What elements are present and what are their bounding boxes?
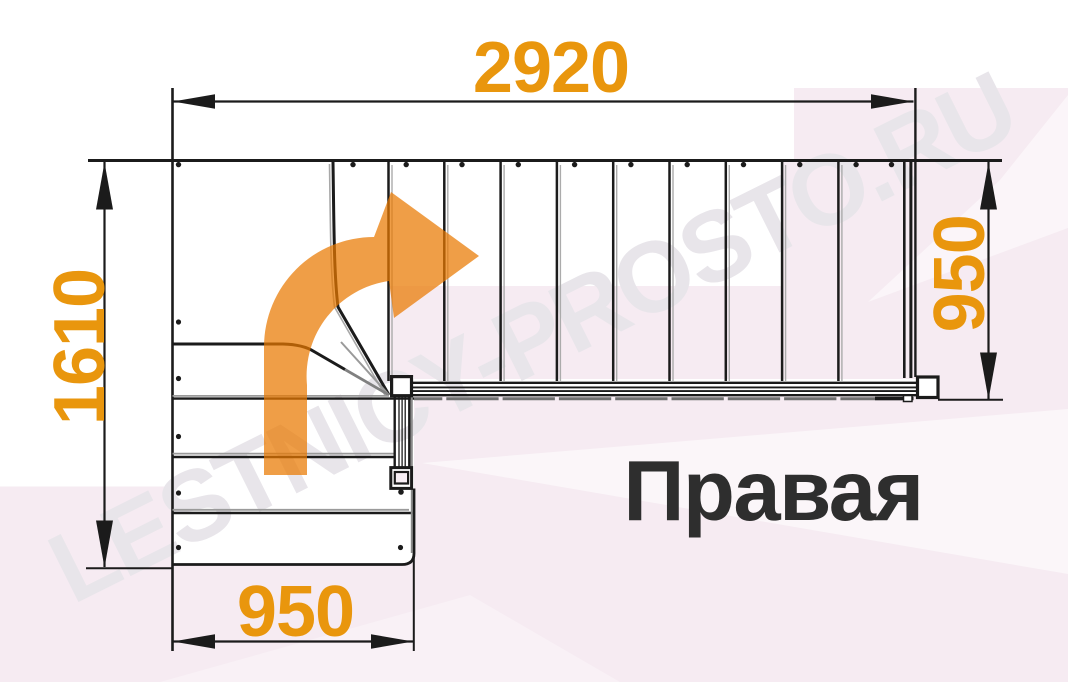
svg-text:2920: 2920 xyxy=(473,28,629,108)
svg-text:1610: 1610 xyxy=(40,269,120,425)
svg-text:950: 950 xyxy=(237,572,354,652)
svg-text:Правая: Правая xyxy=(623,444,922,539)
svg-text:950: 950 xyxy=(920,215,1000,332)
